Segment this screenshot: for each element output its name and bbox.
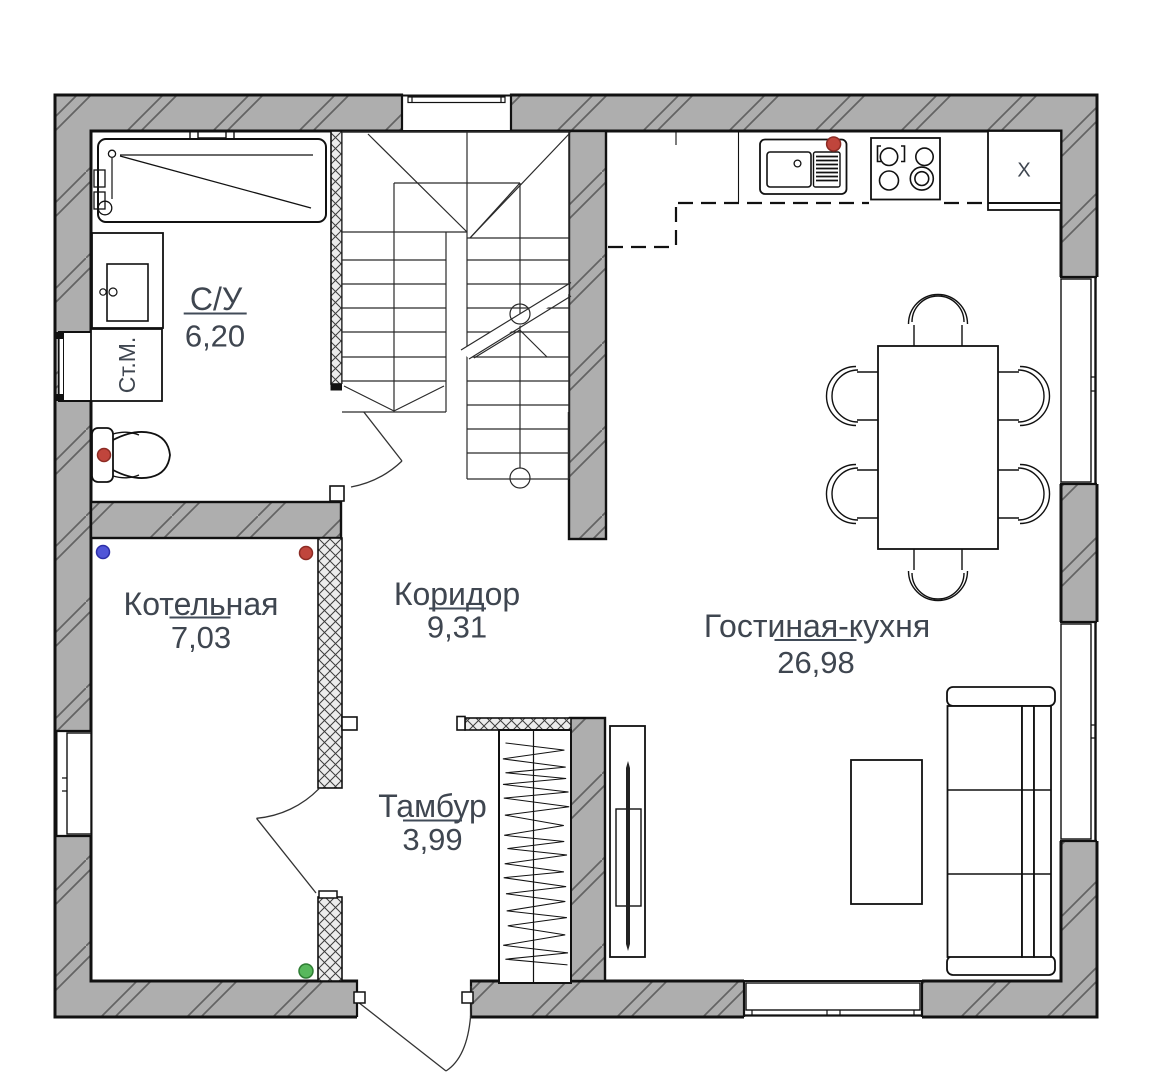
svg-text:6,20: 6,20 [185, 319, 245, 354]
svg-text:26,98: 26,98 [777, 645, 855, 680]
svg-text:X: X [1017, 160, 1030, 182]
svg-text:С/У: С/У [190, 281, 243, 317]
svg-text:Ст.М.: Ст.М. [114, 337, 140, 394]
svg-text:3,99: 3,99 [402, 822, 462, 857]
svg-text:Тамбур: Тамбур [378, 788, 487, 824]
svg-text:9,31: 9,31 [427, 610, 487, 645]
svg-text:Коридор: Коридор [394, 576, 520, 612]
svg-text:7,03: 7,03 [171, 620, 231, 655]
svg-text:Гостиная-кухня: Гостиная-кухня [704, 608, 930, 644]
